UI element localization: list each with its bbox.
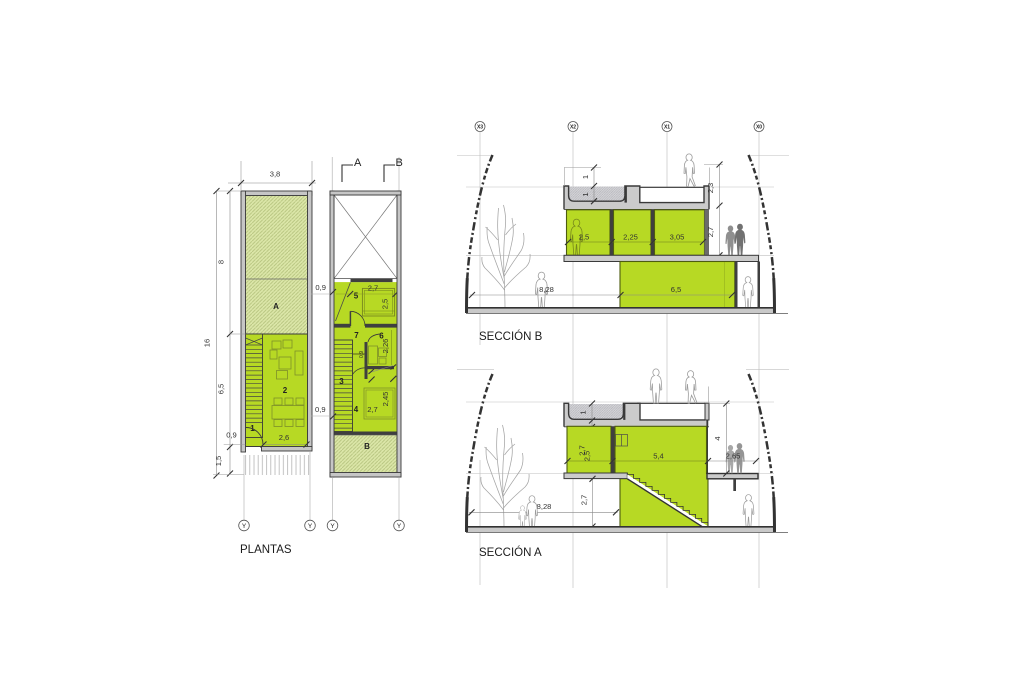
svg-text:8: 8 xyxy=(217,260,226,264)
svg-text:2,7: 2,7 xyxy=(706,227,715,238)
svg-text:2,3: 2,3 xyxy=(706,183,715,194)
svg-text:6,5: 6,5 xyxy=(671,285,682,294)
svg-text:4: 4 xyxy=(713,436,722,440)
svg-text:5: 5 xyxy=(354,292,359,301)
svg-text:2,45: 2,45 xyxy=(381,392,390,407)
svg-text:2,7: 2,7 xyxy=(368,284,379,293)
svg-text:X2: X2 xyxy=(570,125,576,131)
svg-text:SECCIÓN A: SECCIÓN A xyxy=(479,546,542,559)
svg-text:4: 4 xyxy=(354,405,359,414)
svg-text:1: 1 xyxy=(579,410,588,414)
svg-text:1: 1 xyxy=(581,192,590,196)
svg-text:PLANTAS: PLANTAS xyxy=(240,544,292,556)
svg-text:2,5: 2,5 xyxy=(583,451,592,462)
svg-text:0,9: 0,9 xyxy=(315,405,326,414)
svg-text:2,26: 2,26 xyxy=(381,339,390,354)
svg-text:X3: X3 xyxy=(477,125,483,131)
svg-text:2: 2 xyxy=(283,386,288,395)
svg-text:3,8: 3,8 xyxy=(270,170,281,179)
svg-text:A: A xyxy=(354,157,362,169)
svg-text:A: A xyxy=(273,302,279,311)
svg-text:Y: Y xyxy=(308,523,313,530)
svg-text:2,7: 2,7 xyxy=(367,405,378,414)
svg-text:X1: X1 xyxy=(664,125,670,131)
svg-text:3,05: 3,05 xyxy=(670,233,685,242)
svg-text:0,9: 0,9 xyxy=(359,351,365,358)
svg-text:2,5: 2,5 xyxy=(381,299,390,310)
svg-text:B: B xyxy=(364,442,370,451)
svg-text:Y: Y xyxy=(397,523,402,530)
svg-text:5,4: 5,4 xyxy=(653,452,664,461)
svg-text:2,5: 2,5 xyxy=(579,233,590,242)
svg-text:B: B xyxy=(396,157,403,169)
svg-text:X0: X0 xyxy=(756,125,762,131)
svg-text:0,9: 0,9 xyxy=(315,283,326,292)
svg-text:6,5: 6,5 xyxy=(217,384,226,395)
svg-text:Y: Y xyxy=(242,523,247,530)
svg-text:0,9: 0,9 xyxy=(226,431,237,440)
svg-text:8,28: 8,28 xyxy=(539,285,554,294)
svg-text:8,28: 8,28 xyxy=(537,502,552,511)
svg-text:Y: Y xyxy=(330,523,335,530)
svg-text:2,65: 2,65 xyxy=(726,452,741,461)
svg-text:16: 16 xyxy=(203,339,212,347)
svg-text:1: 1 xyxy=(581,175,590,179)
svg-text:SECCIÓN B: SECCIÓN B xyxy=(479,330,543,343)
svg-text:2,7: 2,7 xyxy=(580,495,589,506)
svg-text:2,6: 2,6 xyxy=(279,433,290,442)
svg-text:7: 7 xyxy=(354,331,359,340)
svg-text:2,25: 2,25 xyxy=(623,233,638,242)
svg-text:3: 3 xyxy=(339,377,344,386)
svg-text:1,5: 1,5 xyxy=(214,456,223,467)
